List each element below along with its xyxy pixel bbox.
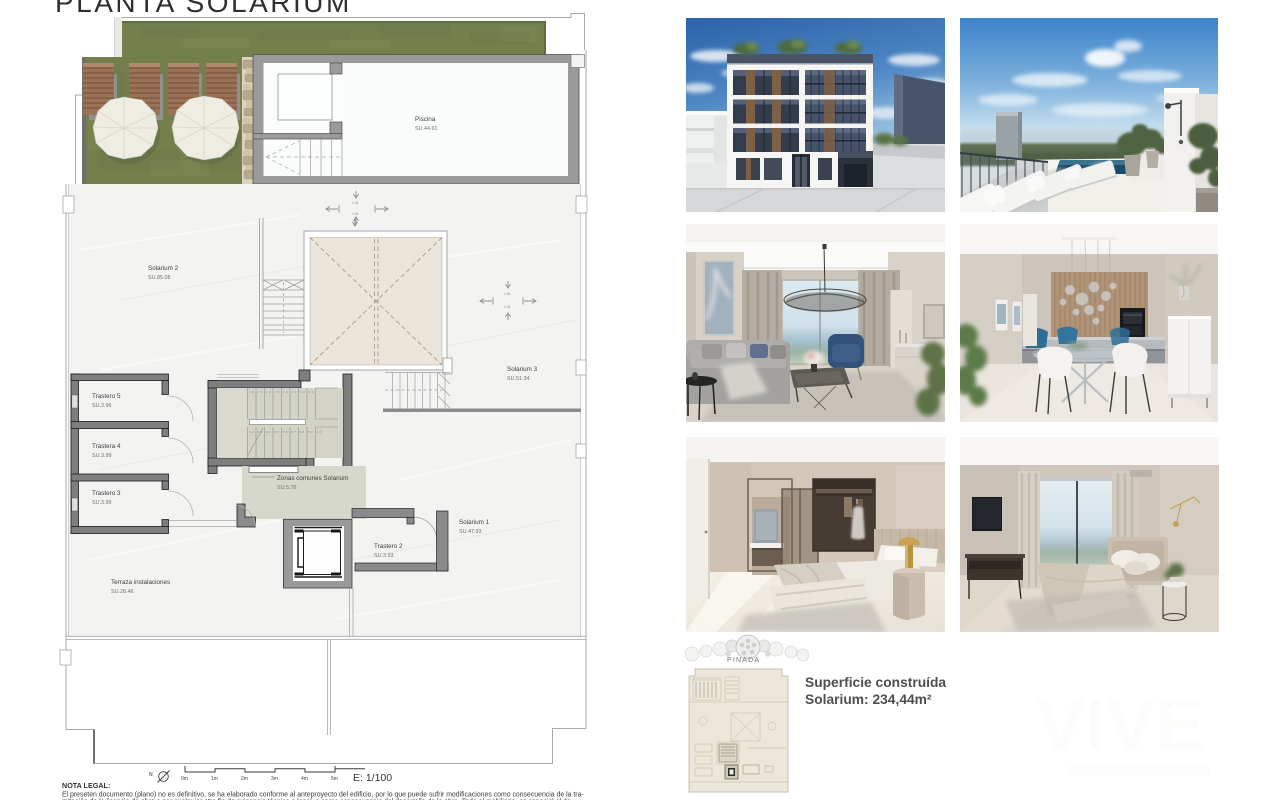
svg-text:El preseten documento (plano): El preseten documento (plano) no es defi… xyxy=(62,792,584,799)
svg-text:SU.28.46: SU.28.46 xyxy=(111,589,133,595)
svg-text:2m: 2m xyxy=(241,776,248,782)
svg-text:1m: 1m xyxy=(211,776,218,782)
svg-text:SU.44.61: SU.44.61 xyxy=(415,126,437,132)
svg-text:Trastero 2: Trastero 2 xyxy=(374,543,403,550)
svg-text:Trastero 5: Trastero 5 xyxy=(92,393,121,400)
svg-text:18 17 16 15 14 13 12 11: 18 17 16 15 14 13 12 11 xyxy=(249,390,313,394)
svg-text:SU.3.96: SU.3.96 xyxy=(92,403,111,409)
svg-text:E: 1/100: E: 1/100 xyxy=(353,772,392,784)
svg-text:Trastero 3: Trastero 3 xyxy=(92,490,121,497)
svg-text:Trastera 4: Trastera 4 xyxy=(92,443,121,450)
svg-text:SU.3.99: SU.3.99 xyxy=(92,500,111,506)
svg-text:SU.85.08: SU.85.08 xyxy=(148,275,170,281)
svg-text:Solarium 2: Solarium 2 xyxy=(148,265,179,272)
svg-text:4m: 4m xyxy=(301,776,308,782)
svg-text:3m: 3m xyxy=(271,776,278,782)
svg-text:SU.5.76: SU.5.76 xyxy=(277,485,296,491)
svg-text:1.06: 1.06 xyxy=(352,212,358,216)
svg-text:Zonas comunes Solarium: Zonas comunes Solarium xyxy=(277,475,348,482)
svg-text:SU.51.34: SU.51.34 xyxy=(507,376,529,382)
svg-text:Terraza instalaciones: Terraza instalaciones xyxy=(111,579,170,586)
svg-text:1.06: 1.06 xyxy=(504,305,510,309)
svg-text:SU.47.93: SU.47.93 xyxy=(459,529,481,535)
svg-text:SU.3.99: SU.3.99 xyxy=(92,453,111,459)
svg-text:N: N xyxy=(149,772,153,778)
svg-text:Solarium 3: Solarium 3 xyxy=(507,366,538,373)
svg-text:NOTA LEGAL:: NOTA LEGAL: xyxy=(62,781,110,790)
svg-text:5m: 5m xyxy=(331,776,338,782)
svg-text:1.06: 1.06 xyxy=(352,201,358,205)
svg-text:Solarium 1: Solarium 1 xyxy=(459,519,490,526)
svg-text:02 03 04 05 06 07 08 09 10: 02 03 04 05 06 07 08 09 10 xyxy=(249,430,321,434)
svg-text:SU.3.93: SU.3.93 xyxy=(374,553,393,559)
svg-text:0m: 0m xyxy=(181,776,188,782)
svg-text:Piscina: Piscina xyxy=(415,116,436,123)
svg-text:1.06: 1.06 xyxy=(504,292,510,296)
